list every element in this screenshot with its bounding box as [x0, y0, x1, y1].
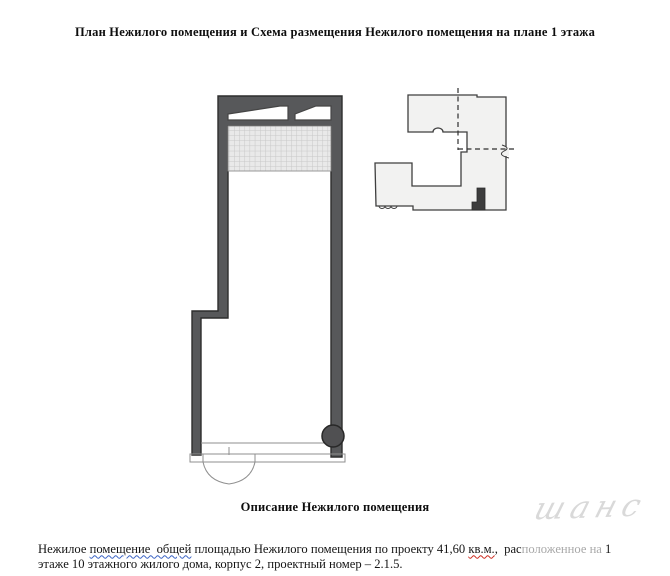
- plan-drawing: [0, 0, 670, 576]
- column-circle: [322, 425, 344, 447]
- building-outline: [375, 95, 506, 210]
- section-heading: Описание Нежилого помещения: [0, 500, 670, 515]
- description-line-1: Нежилое помещение общей площадью Нежилог…: [38, 542, 646, 558]
- watermark-faded-text: положенное на: [522, 542, 602, 556]
- hatched-zone: [228, 126, 331, 171]
- entrance-threshold: [190, 454, 345, 462]
- door-swing-right: [229, 462, 255, 484]
- spellcheck-underline: кв.м.: [468, 542, 494, 556]
- door-swing-left: [203, 462, 229, 484]
- description-line-2: этаже 10 этажного жилого дома, корпус 2,…: [38, 557, 646, 573]
- floor-plan: [190, 96, 345, 484]
- grammar-underline: помещение общей: [90, 542, 192, 556]
- description-paragraph: Нежилое помещение общей площадью Нежилог…: [38, 542, 646, 573]
- location-scheme: [375, 88, 517, 210]
